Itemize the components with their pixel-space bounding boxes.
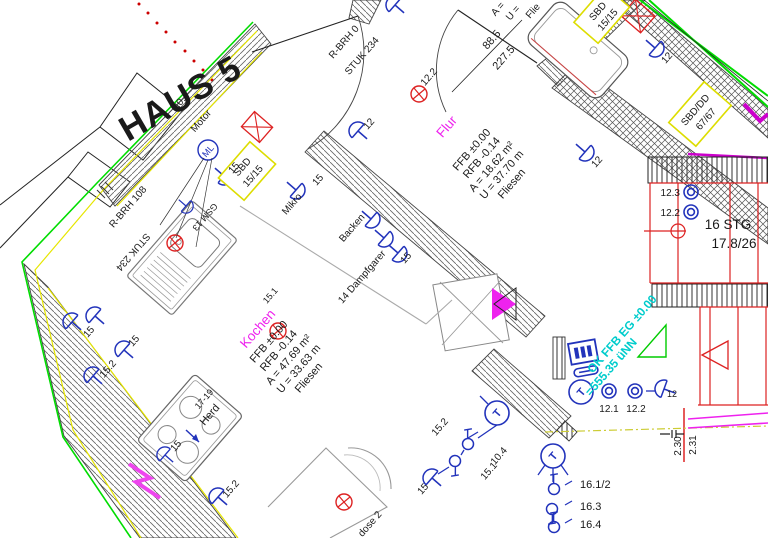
svg-text:12.3: 12.3	[661, 188, 681, 199]
wall-pier	[553, 337, 565, 379]
stair-dim-1: 2.30	[673, 436, 684, 456]
stair-steps-label: 16 STG	[705, 217, 752, 232]
svg-text:12.1: 12.1	[599, 404, 619, 415]
floorplan-svg: T T T SBD 15/15 SBD 15/15 SBD/DD 67/67 H…	[0, 0, 768, 538]
floorplan-canvas: T T T SBD 15/15 SBD 15/15 SBD/DD 67/67 H…	[0, 0, 768, 538]
stair-landing-top	[648, 157, 768, 183]
svg-text:16.4: 16.4	[580, 519, 601, 531]
svg-text:16.1/2: 16.1/2	[580, 479, 611, 491]
stair-landing-mid	[652, 284, 768, 307]
svg-text:12: 12	[667, 389, 677, 399]
svg-text:16.3: 16.3	[580, 501, 601, 513]
svg-text:12.2: 12.2	[626, 404, 646, 415]
svg-text:12.2: 12.2	[661, 208, 681, 219]
stair-riserun-label: 17.8/26	[711, 236, 756, 251]
stair-dim-2: 2.31	[688, 435, 699, 455]
